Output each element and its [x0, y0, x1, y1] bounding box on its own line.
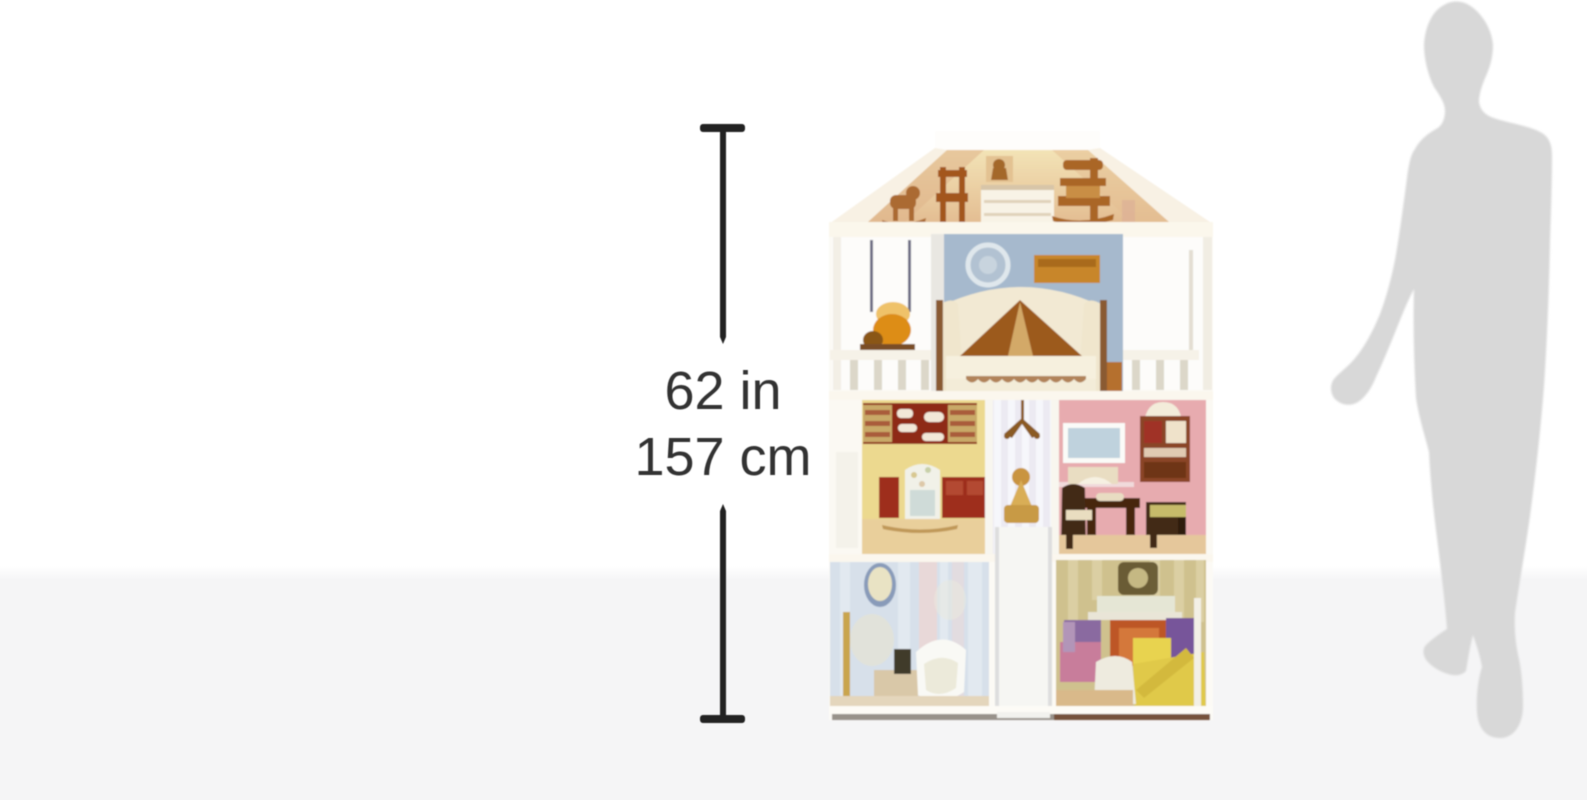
- svg-text:62 in: 62 in: [664, 361, 781, 421]
- svg-text:157 cm: 157 cm: [634, 427, 811, 487]
